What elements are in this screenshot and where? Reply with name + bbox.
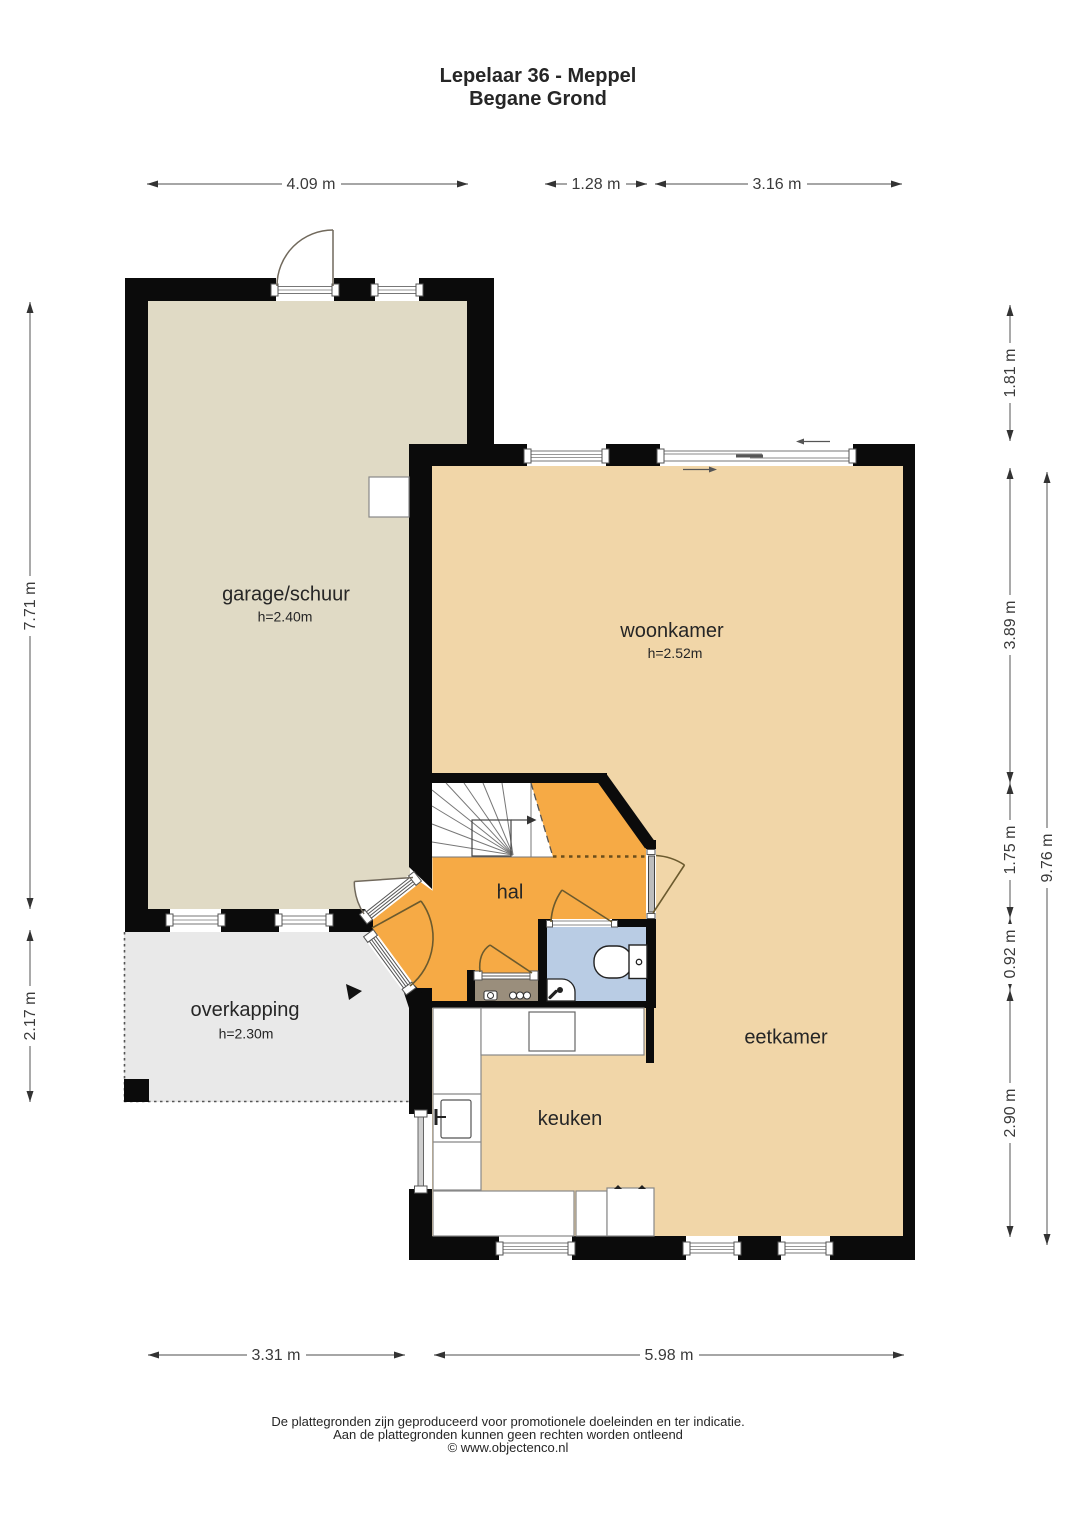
svg-text:1.75 m: 1.75 m xyxy=(1002,826,1019,875)
svg-text:2.90 m: 2.90 m xyxy=(1002,1089,1019,1138)
svg-text:garage/schuur: garage/schuur xyxy=(222,584,350,606)
svg-text:Lepelaar 36 - Meppel: Lepelaar 36 - Meppel xyxy=(440,65,637,87)
svg-text:4.09 m: 4.09 m xyxy=(287,176,336,193)
svg-text:overkapping: overkapping xyxy=(191,999,300,1021)
svg-text:Begane Grond: Begane Grond xyxy=(469,88,607,110)
svg-text:7.71 m: 7.71 m xyxy=(22,582,39,631)
svg-text:3.89 m: 3.89 m xyxy=(1002,601,1019,650)
svg-text:1.81 m: 1.81 m xyxy=(1002,349,1019,398)
svg-text:5.98 m: 5.98 m xyxy=(645,1347,694,1364)
svg-text:3.31 m: 3.31 m xyxy=(252,1347,301,1364)
svg-text:h=2.52m: h=2.52m xyxy=(648,645,703,661)
svg-text:1.28 m: 1.28 m xyxy=(572,176,621,193)
svg-text:hal: hal xyxy=(497,882,524,904)
svg-text:9.76 m: 9.76 m xyxy=(1039,834,1056,883)
svg-text:3.16 m: 3.16 m xyxy=(753,176,802,193)
svg-text:keuken: keuken xyxy=(538,1108,603,1130)
svg-text:woonkamer: woonkamer xyxy=(619,620,724,642)
svg-text:2.17 m: 2.17 m xyxy=(22,992,39,1041)
svg-text:h=2.30m: h=2.30m xyxy=(219,1026,274,1042)
svg-text:eetkamer: eetkamer xyxy=(744,1027,828,1049)
svg-text:0.92 m: 0.92 m xyxy=(1002,930,1019,979)
svg-text:h=2.40m: h=2.40m xyxy=(258,609,313,625)
svg-text:© www.objectenco.nl: © www.objectenco.nl xyxy=(448,1440,569,1455)
